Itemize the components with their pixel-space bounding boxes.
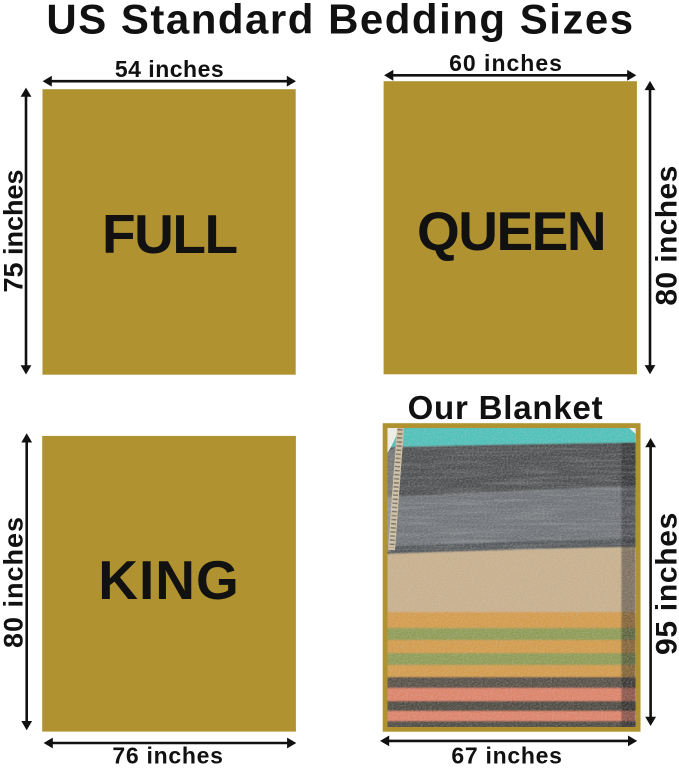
svg-text:80 inches: 80 inches (651, 165, 679, 305)
svg-text:60 inches: 60 inches (449, 50, 563, 76)
svg-text:95 inches: 95 inches (651, 512, 679, 655)
svg-text:80 inches: 80 inches (0, 516, 29, 648)
svg-text:FULL: FULL (102, 203, 237, 265)
svg-text:KING: KING (98, 549, 240, 611)
svg-text:US Standard Bedding Sizes: US Standard Bedding Sizes (46, 0, 634, 43)
svg-text:QUEEN: QUEEN (417, 200, 605, 262)
svg-text:54 inches: 54 inches (115, 56, 224, 82)
svg-text:75 inches: 75 inches (0, 169, 29, 292)
svg-text:Our Blanket: Our Blanket (408, 389, 604, 426)
svg-text:67 inches: 67 inches (451, 742, 562, 768)
svg-text:76 inches: 76 inches (112, 742, 223, 768)
